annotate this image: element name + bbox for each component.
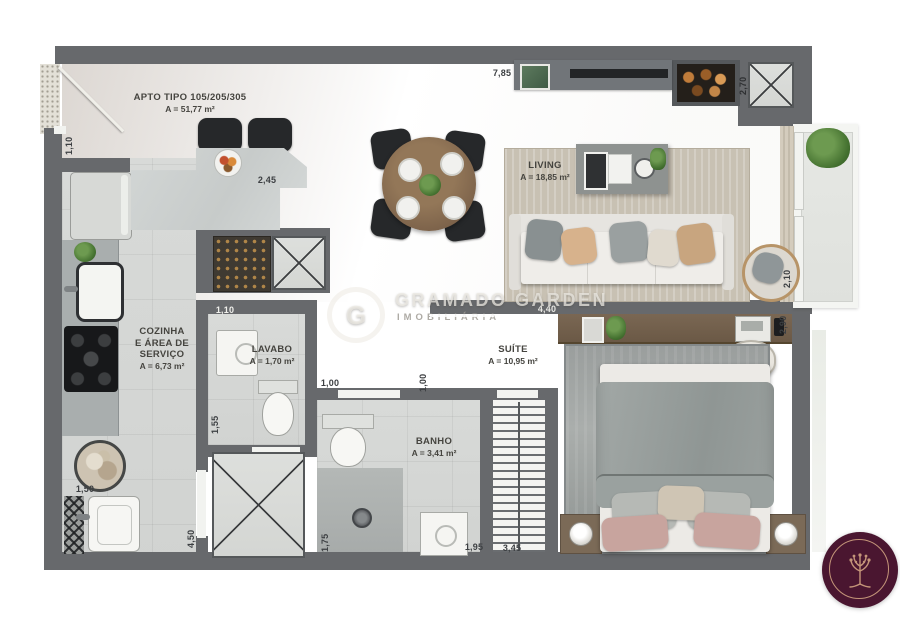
apartment-title-area: A = 51,77 m² xyxy=(110,104,270,114)
door-banho xyxy=(338,390,400,398)
dim-entry: 1,10 xyxy=(64,130,74,162)
watermark-logo-letter: G xyxy=(346,302,366,328)
wall-closet-right xyxy=(545,388,558,552)
door-service-leaf xyxy=(197,470,206,538)
closet-rails xyxy=(493,400,545,552)
shaft-southwest xyxy=(212,452,305,558)
sofa-arm-left xyxy=(509,214,521,290)
plate-4 xyxy=(442,196,466,220)
plate-2 xyxy=(440,152,464,176)
plate-1 xyxy=(398,158,422,182)
label-lavabo: LAVABO A = 1,70 m² xyxy=(240,344,304,366)
banho-toilet-bowl xyxy=(330,427,366,467)
fridge-handle xyxy=(121,175,128,235)
brand-logo-badge xyxy=(822,532,898,608)
fireplace xyxy=(672,60,740,106)
shower-head xyxy=(352,508,372,528)
label-suite-name: SUÍTE xyxy=(480,344,546,356)
wall-closet-left xyxy=(480,388,493,552)
bar-stool-1 xyxy=(198,118,242,152)
lavabo-toilet-bowl xyxy=(262,392,294,436)
sofa-pillow-5 xyxy=(675,222,716,267)
apartment-title-text: APTO TIPO 105/205/305 xyxy=(110,92,270,104)
table-centerpiece xyxy=(419,174,441,196)
tv-screen xyxy=(570,69,668,78)
label-cozinha-name: COZINHA E ÁREA DE SERVIÇO xyxy=(126,326,198,361)
label-cozinha: COZINHA E ÁREA DE SERVIÇO A = 6,73 m² xyxy=(126,326,198,371)
fridge xyxy=(70,172,132,240)
laundry-tank xyxy=(88,496,140,552)
brand-logo-tree-icon xyxy=(843,551,877,589)
sideboard-plant xyxy=(650,148,666,170)
dim-lavabo-depth: 1,55 xyxy=(210,410,220,440)
fireplace-logs xyxy=(677,64,735,102)
label-lavabo-name: LAVABO xyxy=(240,344,304,356)
laundry-tank-bowl xyxy=(97,505,132,545)
wall-ne-band xyxy=(738,106,812,126)
balcony-door-a xyxy=(794,132,804,210)
pantry-cabinet xyxy=(272,236,326,290)
label-suite-area: A = 10,95 m² xyxy=(480,356,546,366)
dim-hall-a: 1,00 xyxy=(315,378,345,388)
watermark-logo-ring: G xyxy=(327,287,385,343)
sofa-pillow-2 xyxy=(560,226,598,266)
dim-banho-width: 1,95 xyxy=(458,542,490,552)
basket-blanket xyxy=(750,250,787,287)
balcony-plant xyxy=(806,128,850,168)
door-closet xyxy=(497,390,538,398)
bar-stool-2 xyxy=(248,118,292,152)
exterior-texture xyxy=(40,64,60,134)
dim-service-depth: 4,50 xyxy=(186,522,196,556)
label-banho: BANHO A = 3,41 m² xyxy=(400,436,468,458)
laundry-hatch-column xyxy=(64,496,84,554)
kitchen-plant xyxy=(74,242,96,262)
dim-lavabo-width: 1,10 xyxy=(210,305,240,315)
garden-strip-right xyxy=(812,330,826,552)
desk-monitor xyxy=(735,316,771,342)
dim-suite-depth: 2,90 xyxy=(778,308,788,342)
label-banho-name: BANHO xyxy=(400,436,468,448)
cooktop xyxy=(64,326,118,392)
banho-sink-bowl xyxy=(435,525,457,547)
label-banho-area: A = 3,41 m² xyxy=(400,448,468,458)
dim-counter: 2,45 xyxy=(250,174,284,186)
desk-frame xyxy=(582,317,604,343)
sofa-pillow-1 xyxy=(524,218,564,262)
desk-plant xyxy=(606,316,626,340)
wall-left xyxy=(44,128,62,570)
sideboard-frame-dark xyxy=(584,152,608,190)
wall-kitchen-divider-b xyxy=(196,536,208,570)
apartment-title: APTO TIPO 105/205/305 A = 51,77 m² xyxy=(110,92,270,114)
console-artwork xyxy=(520,64,550,90)
dim-service-width: 1,50 xyxy=(70,484,100,494)
lamp-right xyxy=(774,522,798,546)
label-living: LIVING A = 18,85 m² xyxy=(505,160,585,182)
watermark-underline xyxy=(430,314,494,317)
plate-3 xyxy=(396,196,420,220)
dim-banho-depth: 1,75 xyxy=(320,526,330,560)
closet-rod xyxy=(518,402,520,550)
lamp-left xyxy=(569,522,593,546)
desk-monitor-screen xyxy=(741,321,763,331)
bed-pillow-pink-right xyxy=(693,512,761,551)
dim-hall-b: 1,00 xyxy=(418,368,428,398)
label-lavabo-area: A = 1,70 m² xyxy=(240,356,304,366)
kitchen-faucet xyxy=(64,286,78,292)
dim-balcony-depth: 2,10 xyxy=(782,262,792,296)
watermark-brand: GRAMADO GARDEN xyxy=(395,290,608,311)
floorplan-canvas: APTO TIPO 105/205/305 A = 51,77 m² LIVIN… xyxy=(0,0,900,618)
dim-fireplace-depth: 2,70 xyxy=(738,70,748,102)
dim-top-width: 7,85 xyxy=(487,68,517,78)
label-living-name: LIVING xyxy=(505,160,585,172)
label-cozinha-area: A = 6,73 m² xyxy=(126,361,198,371)
sideboard-frame-light xyxy=(608,154,632,184)
dim-closet-depth: 3,45 xyxy=(496,543,528,553)
sofa-arm-right xyxy=(722,214,734,290)
kitchen-sink xyxy=(76,262,124,322)
sofa-pillow-3 xyxy=(608,220,649,263)
label-living-area: A = 18,85 m² xyxy=(505,172,585,182)
bed-pillow-pink-left xyxy=(601,514,669,553)
fruit-bowl xyxy=(214,149,242,177)
wine-rack xyxy=(213,236,271,292)
label-suite: SUÍTE A = 10,95 m² xyxy=(480,344,546,366)
shaft-northeast xyxy=(748,62,794,108)
laundry-faucet xyxy=(76,514,90,520)
